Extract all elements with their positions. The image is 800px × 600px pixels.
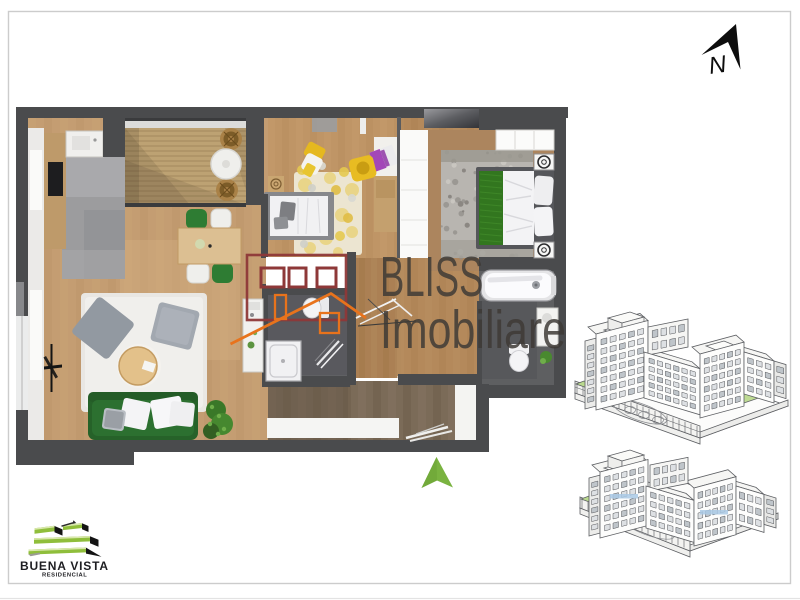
svg-text:Imobiliare: Imobiliare (380, 300, 566, 360)
svg-text:RESIDENCIAL: RESIDENCIAL (42, 573, 87, 579)
svg-text:N: N (707, 51, 729, 80)
svg-text:BUENA VISTA: BUENA VISTA (20, 559, 109, 573)
